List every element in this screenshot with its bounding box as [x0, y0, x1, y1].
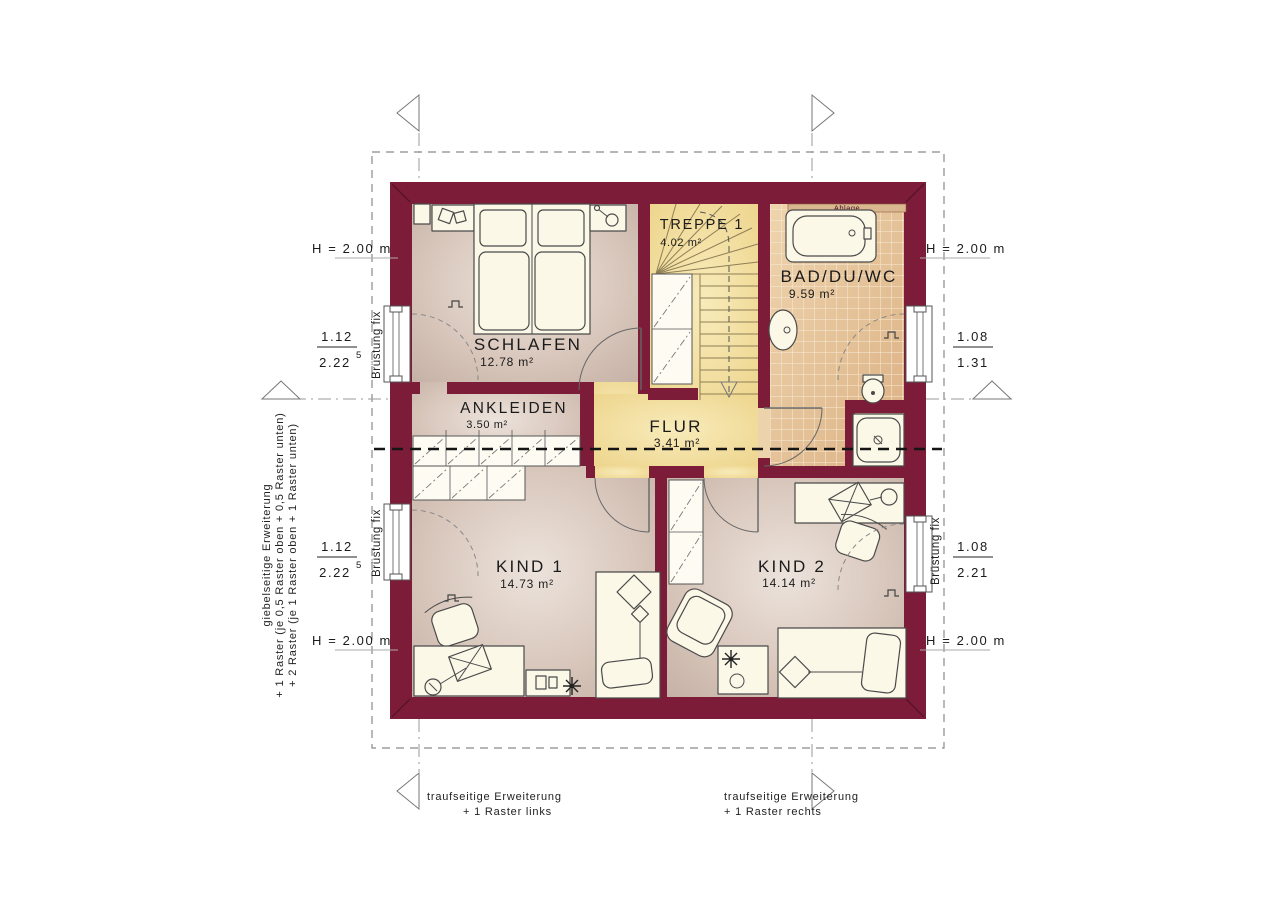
shower	[853, 414, 904, 466]
nightstand-right	[590, 205, 626, 231]
kind1-area: 14.73 m²	[500, 577, 554, 591]
dimension-left-top: 1.12 2.22 5	[317, 329, 361, 370]
ankleiden-area: 3.50 m²	[466, 419, 508, 431]
kind2-desk	[795, 482, 904, 523]
svg-text:5: 5	[356, 350, 361, 361]
eave-note-left-line2: + 1 Raster links	[463, 806, 552, 818]
toilet	[862, 375, 884, 403]
svg-text:1.08: 1.08	[957, 539, 989, 554]
height-left-bottom: H = 2.00 m	[312, 633, 392, 648]
ankleiden-label: ANKLEIDEN	[460, 400, 568, 417]
wall-ankleiden-flur	[580, 382, 594, 466]
floor-plan-page: Ablage	[0, 0, 1280, 905]
height-right-bottom: H = 2.00 m	[926, 633, 1006, 648]
height-left-top: H = 2.00 m	[312, 241, 392, 256]
brustung-fix-right-bottom: Brüstung fix	[930, 517, 942, 585]
grid-arrow-top-right	[812, 95, 834, 131]
svg-text:1.12: 1.12	[321, 539, 353, 554]
kind2-label: KIND 2	[758, 557, 826, 576]
bad-area: 9.59 m²	[789, 287, 835, 301]
svg-text:2.22: 2.22	[319, 355, 351, 370]
grid-arrow-left	[262, 381, 300, 399]
bad-label: BAD/DU/WC	[780, 267, 897, 286]
wall-bad-kind2	[770, 466, 904, 478]
svg-text:5: 5	[356, 560, 361, 571]
kind1-bed	[596, 572, 660, 698]
height-right-top: H = 2.00 m	[926, 241, 1006, 256]
bad-door-threshold	[758, 404, 770, 462]
kind2-bed	[778, 628, 906, 698]
bathtub	[786, 210, 876, 262]
gable-note-line2: + 1 Raster (je 0,5 Raster oben + 0,5 Ras…	[274, 412, 286, 697]
wall-schlafen-ankleiden	[447, 382, 584, 394]
treppe-area: 4.02 m²	[660, 237, 702, 249]
wall-schlafen-treppe	[638, 204, 650, 394]
eave-note-right-line2: + 1 Raster rechts	[724, 806, 822, 818]
brustung-fix-left-top: Brüstung fix	[371, 311, 383, 379]
dimension-right-top: 1.08 1.31	[953, 329, 993, 370]
kind2-area: 14.14 m²	[762, 576, 816, 590]
kind1-label: KIND 1	[496, 557, 564, 576]
svg-text:2.21: 2.21	[957, 565, 989, 580]
eave-note-right-line1: traufseitige Erweiterung	[724, 791, 859, 803]
wall-treppe-bad	[758, 204, 770, 404]
double-bed	[474, 204, 590, 334]
brustung-fix-left-bottom: Brüstung fix	[371, 509, 383, 577]
kind2-door-threshold	[704, 466, 758, 478]
flur-area: 3.41 m²	[654, 436, 700, 450]
svg-text:2.22: 2.22	[319, 565, 351, 580]
kind2-wardrobe	[669, 480, 703, 584]
kind1-door-threshold	[595, 466, 649, 478]
nightstand-left	[432, 205, 474, 231]
grid-arrow-right	[973, 381, 1011, 399]
kind1-side-table	[526, 670, 570, 696]
schlafen-label: SCHLAFEN	[474, 335, 582, 354]
dimension-right-bottom: 1.08 2.21	[953, 539, 993, 580]
kind1-closets	[413, 466, 525, 500]
grid-arrow-top-left	[397, 95, 419, 131]
kind1-desk	[414, 645, 524, 696]
gable-note-title: giebelseitige Erweiterung	[261, 484, 273, 627]
treppe-label: TREPPE 1	[660, 217, 745, 233]
floor-plan-drawing: Ablage	[0, 0, 1280, 905]
svg-text:1.08: 1.08	[957, 329, 989, 344]
gable-note-line3: + 2 Raster (je 1 Raster oben + 1 Raster …	[287, 423, 299, 687]
wall-stair-flur	[648, 388, 698, 400]
eave-note-left-line1: traufseitige Erweiterung	[427, 791, 562, 803]
grid-arrow-bottom-left	[397, 773, 419, 809]
svg-text:1.12: 1.12	[321, 329, 353, 344]
flur-label: FLUR	[649, 417, 702, 436]
dimension-left-bottom: 1.12 2.22 5	[317, 539, 361, 580]
schlafen-area: 12.78 m²	[480, 355, 534, 369]
washbasin	[769, 310, 797, 350]
stair-closet	[652, 274, 692, 384]
svg-text:1.31: 1.31	[957, 355, 989, 370]
corner-stool	[414, 204, 430, 224]
